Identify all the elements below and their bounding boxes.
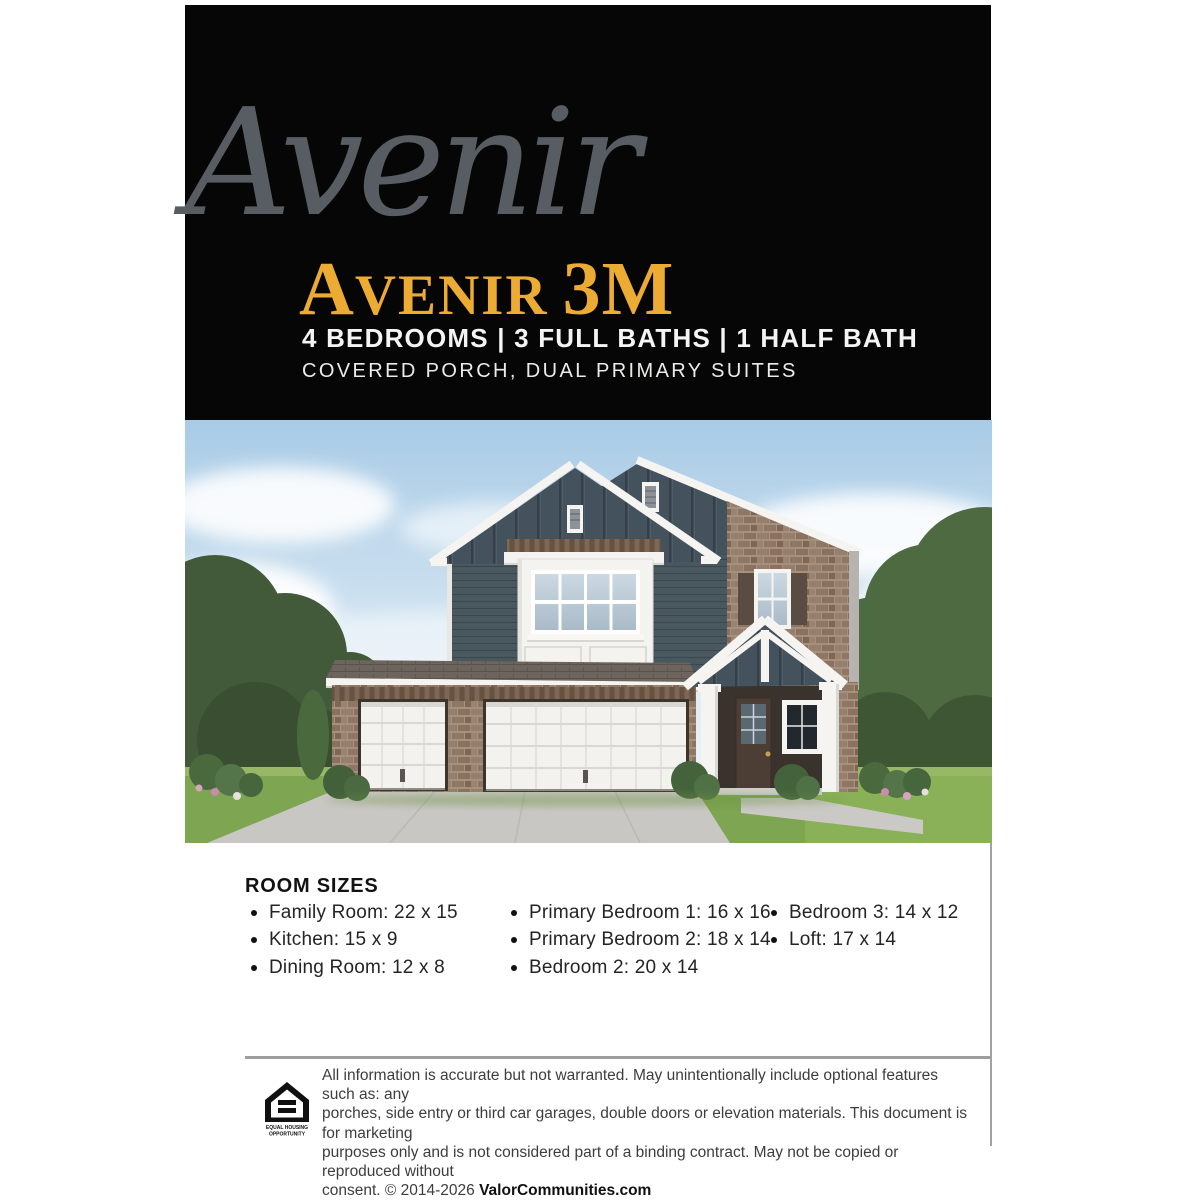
room-size-label: Loft: 17 x 14 — [789, 929, 896, 951]
front-door — [736, 698, 771, 790]
porch-window — [782, 700, 822, 754]
bullet-icon — [251, 910, 257, 916]
disclaimer-line: consent. © 2014-2026 ValorCommunities.co… — [322, 1181, 970, 1200]
room-size-label: Bedroom 2: 20 x 14 — [529, 957, 698, 979]
room-size-item: Bedroom 3: 14 x 12 — [771, 899, 958, 927]
room-size-item: Primary Bedroom 2: 18 x 14 — [511, 927, 771, 955]
disclaimer-text: All information is accurate but not warr… — [322, 1066, 970, 1200]
room-sizes-heading: ROOM SIZES — [245, 875, 379, 898]
room-size-item: Primary Bedroom 1: 16 x 16 — [511, 899, 771, 927]
garage-door-single — [361, 702, 445, 790]
disclaimer-line: All information is accurate but not warr… — [322, 1066, 970, 1104]
equal-housing-caption-2: OPPORTUNITY — [269, 1132, 306, 1138]
room-sizes-column-2: Primary Bedroom 1: 16 x 16 Primary Bedro… — [511, 899, 771, 982]
bullet-icon — [251, 965, 257, 971]
disclaimer-line: purposes only and is not considered part… — [322, 1143, 970, 1181]
room-size-label: Dining Room: 12 x 8 — [269, 957, 445, 979]
room-size-label: Primary Bedroom 2: 18 x 14 — [529, 929, 771, 951]
specs-line: 4 BEDROOMS | 3 FULL BATHS | 1 HALF BATH — [302, 323, 918, 354]
equal-housing-logo: EQUAL HOUSING OPPORTUNITY — [261, 1078, 313, 1138]
disclaimer-consent: consent. © 2014-2026 — [322, 1182, 479, 1199]
room-size-label: Bedroom 3: 14 x 12 — [789, 902, 958, 924]
bullet-icon — [511, 937, 517, 943]
bullet-icon — [771, 910, 777, 916]
room-sizes-column-3: Bedroom 3: 14 x 12 Loft: 17 x 14 — [771, 899, 958, 954]
window-box — [518, 559, 653, 673]
room-size-item: Dining Room: 12 x 8 — [251, 954, 458, 982]
bullet-icon — [771, 937, 777, 943]
room-sizes-column-1: Family Room: 22 x 15 Kitchen: 15 x 9 Din… — [251, 899, 458, 982]
plan-title: AVENIR3M — [299, 251, 674, 327]
room-size-item: Family Room: 22 x 15 — [251, 899, 458, 927]
bullet-icon — [511, 965, 517, 971]
room-size-item: Kitchen: 15 x 9 — [251, 927, 458, 955]
brand-script-logo: Avenir — [185, 89, 634, 237]
room-size-item: Bedroom 2: 20 x 14 — [511, 954, 771, 982]
plan-title-initial: A — [299, 247, 355, 331]
disclaimer-line: porches, side entry or third car garages… — [322, 1104, 970, 1142]
room-size-item: Loft: 17 x 14 — [771, 927, 958, 955]
window-shutter — [790, 573, 807, 625]
bullet-icon — [511, 910, 517, 916]
header-banner: Avenir AVENIR3M 4 BEDROOMS | 3 FULL BATH… — [185, 5, 991, 420]
flyer-page: Avenir AVENIR3M 4 BEDROOMS | 3 FULL BATH… — [0, 0, 1200, 1200]
plan-title-suffix: 3M — [563, 247, 675, 331]
garage-door-double — [486, 702, 686, 791]
website-text: ValorCommunities.com — [479, 1182, 651, 1199]
right-edge-rule — [990, 843, 992, 1146]
brick-ledge — [507, 539, 661, 553]
room-size-label: Primary Bedroom 1: 16 x 16 — [529, 902, 771, 924]
window-shutter — [738, 573, 755, 625]
equal-housing-caption-1: EQUAL HOUSING — [266, 1125, 308, 1131]
house-rendering — [185, 420, 992, 843]
features-line: COVERED PORCH, DUAL PRIMARY SUITES — [302, 360, 798, 383]
room-size-label: Family Room: 22 x 15 — [269, 902, 458, 924]
room-size-label: Kitchen: 15 x 9 — [269, 929, 398, 951]
bullet-icon — [251, 937, 257, 943]
footer-divider — [245, 1056, 992, 1059]
plan-title-rest: VENIR — [355, 264, 549, 327]
